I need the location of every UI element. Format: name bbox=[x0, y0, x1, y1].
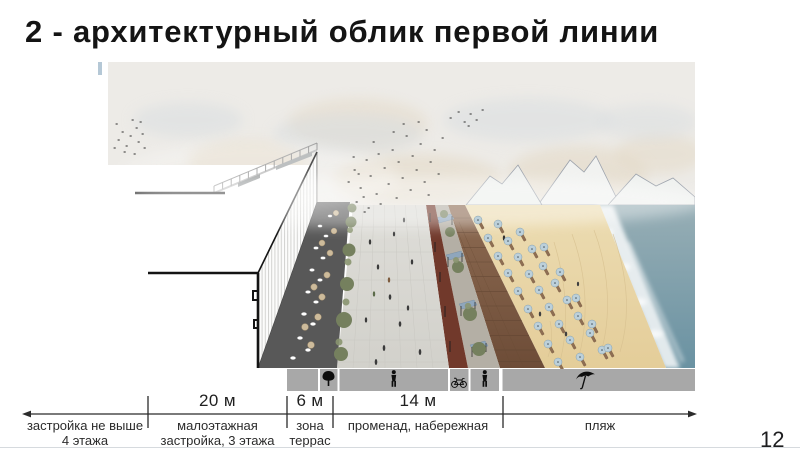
legend-cell-empty bbox=[287, 369, 318, 391]
bottom-divider bbox=[0, 447, 800, 448]
legend-cell-tree bbox=[320, 369, 338, 391]
dimension-segment-zastroika: застройка не выше 4 этажа bbox=[22, 390, 148, 448]
dimension-segment-promenad: 14 м променад, набережная bbox=[333, 390, 503, 433]
icon-band bbox=[287, 369, 695, 391]
measure-label bbox=[22, 390, 148, 412]
legend-cell-beach bbox=[503, 369, 696, 391]
segment-label: пляж bbox=[503, 418, 697, 433]
measure-label: 20 м bbox=[148, 390, 287, 412]
measure-label bbox=[503, 390, 697, 412]
dimension-segment-plyazh: пляж bbox=[503, 390, 697, 433]
dimension-segment-terrasy: 6 м зона террас bbox=[287, 390, 333, 448]
legend-cell-bike bbox=[450, 369, 469, 391]
legend-cell-walk-2 bbox=[471, 369, 500, 391]
segment-label: променад, набережная bbox=[333, 418, 503, 433]
page-number: 12 bbox=[760, 427, 784, 453]
segment-label: зона bbox=[287, 418, 333, 433]
artwork-edge-sliver bbox=[98, 62, 102, 75]
measure-label: 14 м bbox=[333, 390, 503, 412]
segment-label: 4 этажа bbox=[22, 433, 148, 448]
legend-cell-walk bbox=[340, 369, 449, 391]
segment-label: застройка не выше bbox=[22, 418, 148, 433]
segment-label: террас bbox=[287, 433, 333, 448]
dimension-segment-maloetazhnaya: 20 м малоэтажная застройка, 3 этажа bbox=[148, 390, 287, 448]
segment-label: малоэтажная bbox=[148, 418, 287, 433]
segment-label: застройка, 3 этажа bbox=[148, 433, 287, 448]
slide-title: 2 - архитектурный облик первой линии bbox=[25, 14, 785, 50]
measure-label: 6 м bbox=[287, 390, 333, 412]
beachfront-illustration bbox=[108, 62, 695, 392]
